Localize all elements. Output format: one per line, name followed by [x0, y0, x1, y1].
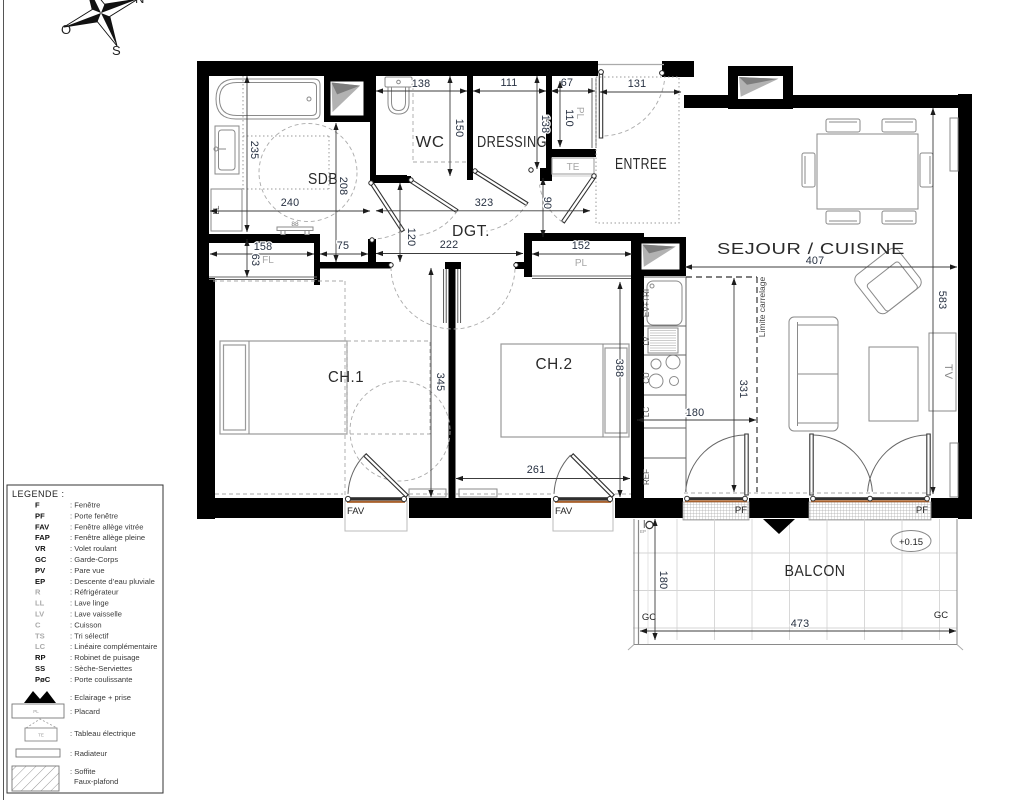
svg-text:: Cuisson: : Cuisson: [70, 620, 102, 629]
svg-text:GC: GC: [642, 612, 656, 623]
svg-text:REF: REF: [642, 469, 651, 485]
svg-text:75: 75: [337, 240, 349, 252]
svg-text:: Réfrigérateur: : Réfrigérateur: [70, 588, 119, 597]
svg-text:235: 235: [248, 141, 260, 160]
svg-text:TE: TE: [567, 162, 580, 173]
svg-text:PL: PL: [574, 107, 585, 120]
svg-text:GC: GC: [934, 610, 948, 621]
svg-text:PF: PF: [735, 505, 747, 516]
svg-text:: Soffite: : Soffite: [70, 767, 96, 776]
svg-text:LL: LL: [35, 599, 45, 608]
svg-text:O: O: [61, 22, 71, 37]
svg-text:C: C: [35, 620, 41, 629]
svg-text:+0.15: +0.15: [899, 537, 923, 548]
svg-text:PøC: PøC: [35, 675, 51, 684]
svg-text:131: 131: [628, 78, 647, 90]
svg-text:63: 63: [249, 254, 261, 266]
svg-text:150: 150: [453, 119, 465, 138]
svg-text:EV+TRI: EV+TRI: [642, 289, 651, 317]
svg-text:473: 473: [791, 618, 810, 630]
svg-text:110: 110: [563, 109, 575, 127]
svg-text:LC: LC: [35, 642, 46, 651]
svg-text:: Volet roulant: : Volet roulant: [70, 544, 117, 553]
svg-text:: Fenêtre allège vitrée: : Fenêtre allège vitrée: [70, 522, 143, 531]
svg-text:WC: WC: [416, 134, 445, 151]
svg-text:Limite carrelage: Limite carrelage: [757, 276, 767, 337]
svg-text:: Garde-Corps: : Garde-Corps: [70, 555, 118, 564]
svg-text:SS: SS: [35, 664, 45, 673]
svg-text:LV: LV: [35, 610, 45, 619]
svg-text:180: 180: [686, 407, 705, 419]
svg-text:111: 111: [500, 77, 517, 89]
svg-text:EP: EP: [640, 529, 646, 534]
svg-text:: Fenêtre allège pleine: : Fenêtre allège pleine: [70, 533, 145, 542]
svg-text:261: 261: [527, 464, 546, 476]
svg-text:Faux-plafond: Faux-plafond: [74, 777, 118, 786]
svg-text:TV: TV: [942, 364, 954, 380]
svg-text:: Placard: : Placard: [70, 707, 100, 716]
svg-text:240: 240: [281, 197, 300, 209]
svg-text:: Radiateur: : Radiateur: [70, 749, 108, 758]
svg-text:: Linéaire complémentaire: : Linéaire complémentaire: [70, 642, 157, 651]
svg-text:FAV: FAV: [347, 506, 365, 517]
svg-text:345: 345: [434, 373, 446, 392]
svg-text:: Eclairage + prise: : Eclairage + prise: [70, 693, 131, 702]
svg-text:LC: LC: [642, 407, 651, 417]
svg-text:FAP: FAP: [35, 533, 50, 542]
svg-text:CH.2: CH.2: [536, 356, 573, 373]
svg-text:: Fenêtre: : Fenêtre: [70, 501, 100, 510]
svg-text:LL: LL: [212, 205, 221, 214]
svg-text:FL: FL: [262, 255, 274, 266]
svg-text:222: 222: [440, 239, 459, 251]
svg-text:323: 323: [475, 197, 494, 209]
svg-text:DRESSING: DRESSING: [477, 134, 547, 151]
svg-text:158: 158: [254, 241, 273, 253]
svg-text:180: 180: [657, 571, 669, 590]
svg-text:BALCON: BALCON: [785, 563, 846, 580]
svg-text:SEJOUR / CUISINE: SEJOUR / CUISINE: [717, 241, 905, 258]
svg-text:DGT.: DGT.: [452, 223, 490, 240]
svg-text:LV: LV: [642, 336, 651, 346]
svg-text:: Tableau électrique: : Tableau électrique: [70, 729, 136, 738]
svg-text:R: R: [35, 588, 41, 597]
svg-text:LEGENDE :: LEGENDE :: [12, 489, 65, 499]
svg-text:138: 138: [539, 115, 551, 134]
svg-text:PL: PL: [33, 709, 39, 714]
svg-text:EP: EP: [35, 577, 45, 586]
svg-text:TS: TS: [35, 631, 45, 640]
svg-text:: Pare vue: : Pare vue: [70, 566, 105, 575]
svg-text:90: 90: [541, 197, 553, 209]
svg-text:PF: PF: [35, 511, 45, 520]
svg-text:PL: PL: [575, 258, 588, 269]
svg-text:FAV: FAV: [35, 522, 50, 531]
svg-text:: Lave vaisselle: : Lave vaisselle: [70, 610, 122, 619]
svg-text:N: N: [135, 0, 144, 6]
svg-text:PF: PF: [916, 505, 928, 516]
svg-text:388: 388: [613, 359, 625, 378]
svg-text:PV: PV: [35, 566, 46, 575]
svg-text:: Lave linge: : Lave linge: [70, 599, 109, 608]
svg-text:GC: GC: [35, 555, 47, 564]
svg-text:S: S: [112, 43, 121, 58]
svg-text:583: 583: [936, 291, 948, 310]
svg-text:CH.1: CH.1: [328, 369, 364, 386]
svg-text:: Descente d’eau pluviale: : Descente d’eau pluviale: [70, 577, 155, 586]
svg-text:CU: CU: [642, 372, 651, 384]
svg-text:FAV: FAV: [555, 506, 573, 517]
svg-text:: Porte coulissante: : Porte coulissante: [70, 675, 132, 684]
svg-text:120: 120: [405, 228, 417, 247]
svg-text:TE: TE: [38, 733, 44, 738]
svg-text:331: 331: [737, 380, 749, 399]
svg-text:208: 208: [337, 177, 349, 196]
svg-text:: Porte fenêtre: : Porte fenêtre: [70, 511, 118, 520]
svg-text:88: 88: [291, 221, 299, 228]
svg-text:ENTREE: ENTREE: [615, 156, 667, 173]
svg-text:138: 138: [412, 78, 431, 90]
svg-text:: Sèche-Serviettes: : Sèche-Serviettes: [70, 664, 132, 673]
svg-text:VR: VR: [35, 544, 46, 553]
svg-text:SDB: SDB: [308, 171, 338, 188]
svg-text:67: 67: [561, 77, 573, 89]
svg-text:F: F: [35, 501, 40, 510]
svg-text:: Robinet de puisage: : Robinet de puisage: [70, 653, 140, 662]
svg-text:: Tri sélectif: : Tri sélectif: [70, 631, 109, 640]
svg-text:152: 152: [572, 240, 591, 252]
svg-text:RP: RP: [35, 653, 46, 662]
